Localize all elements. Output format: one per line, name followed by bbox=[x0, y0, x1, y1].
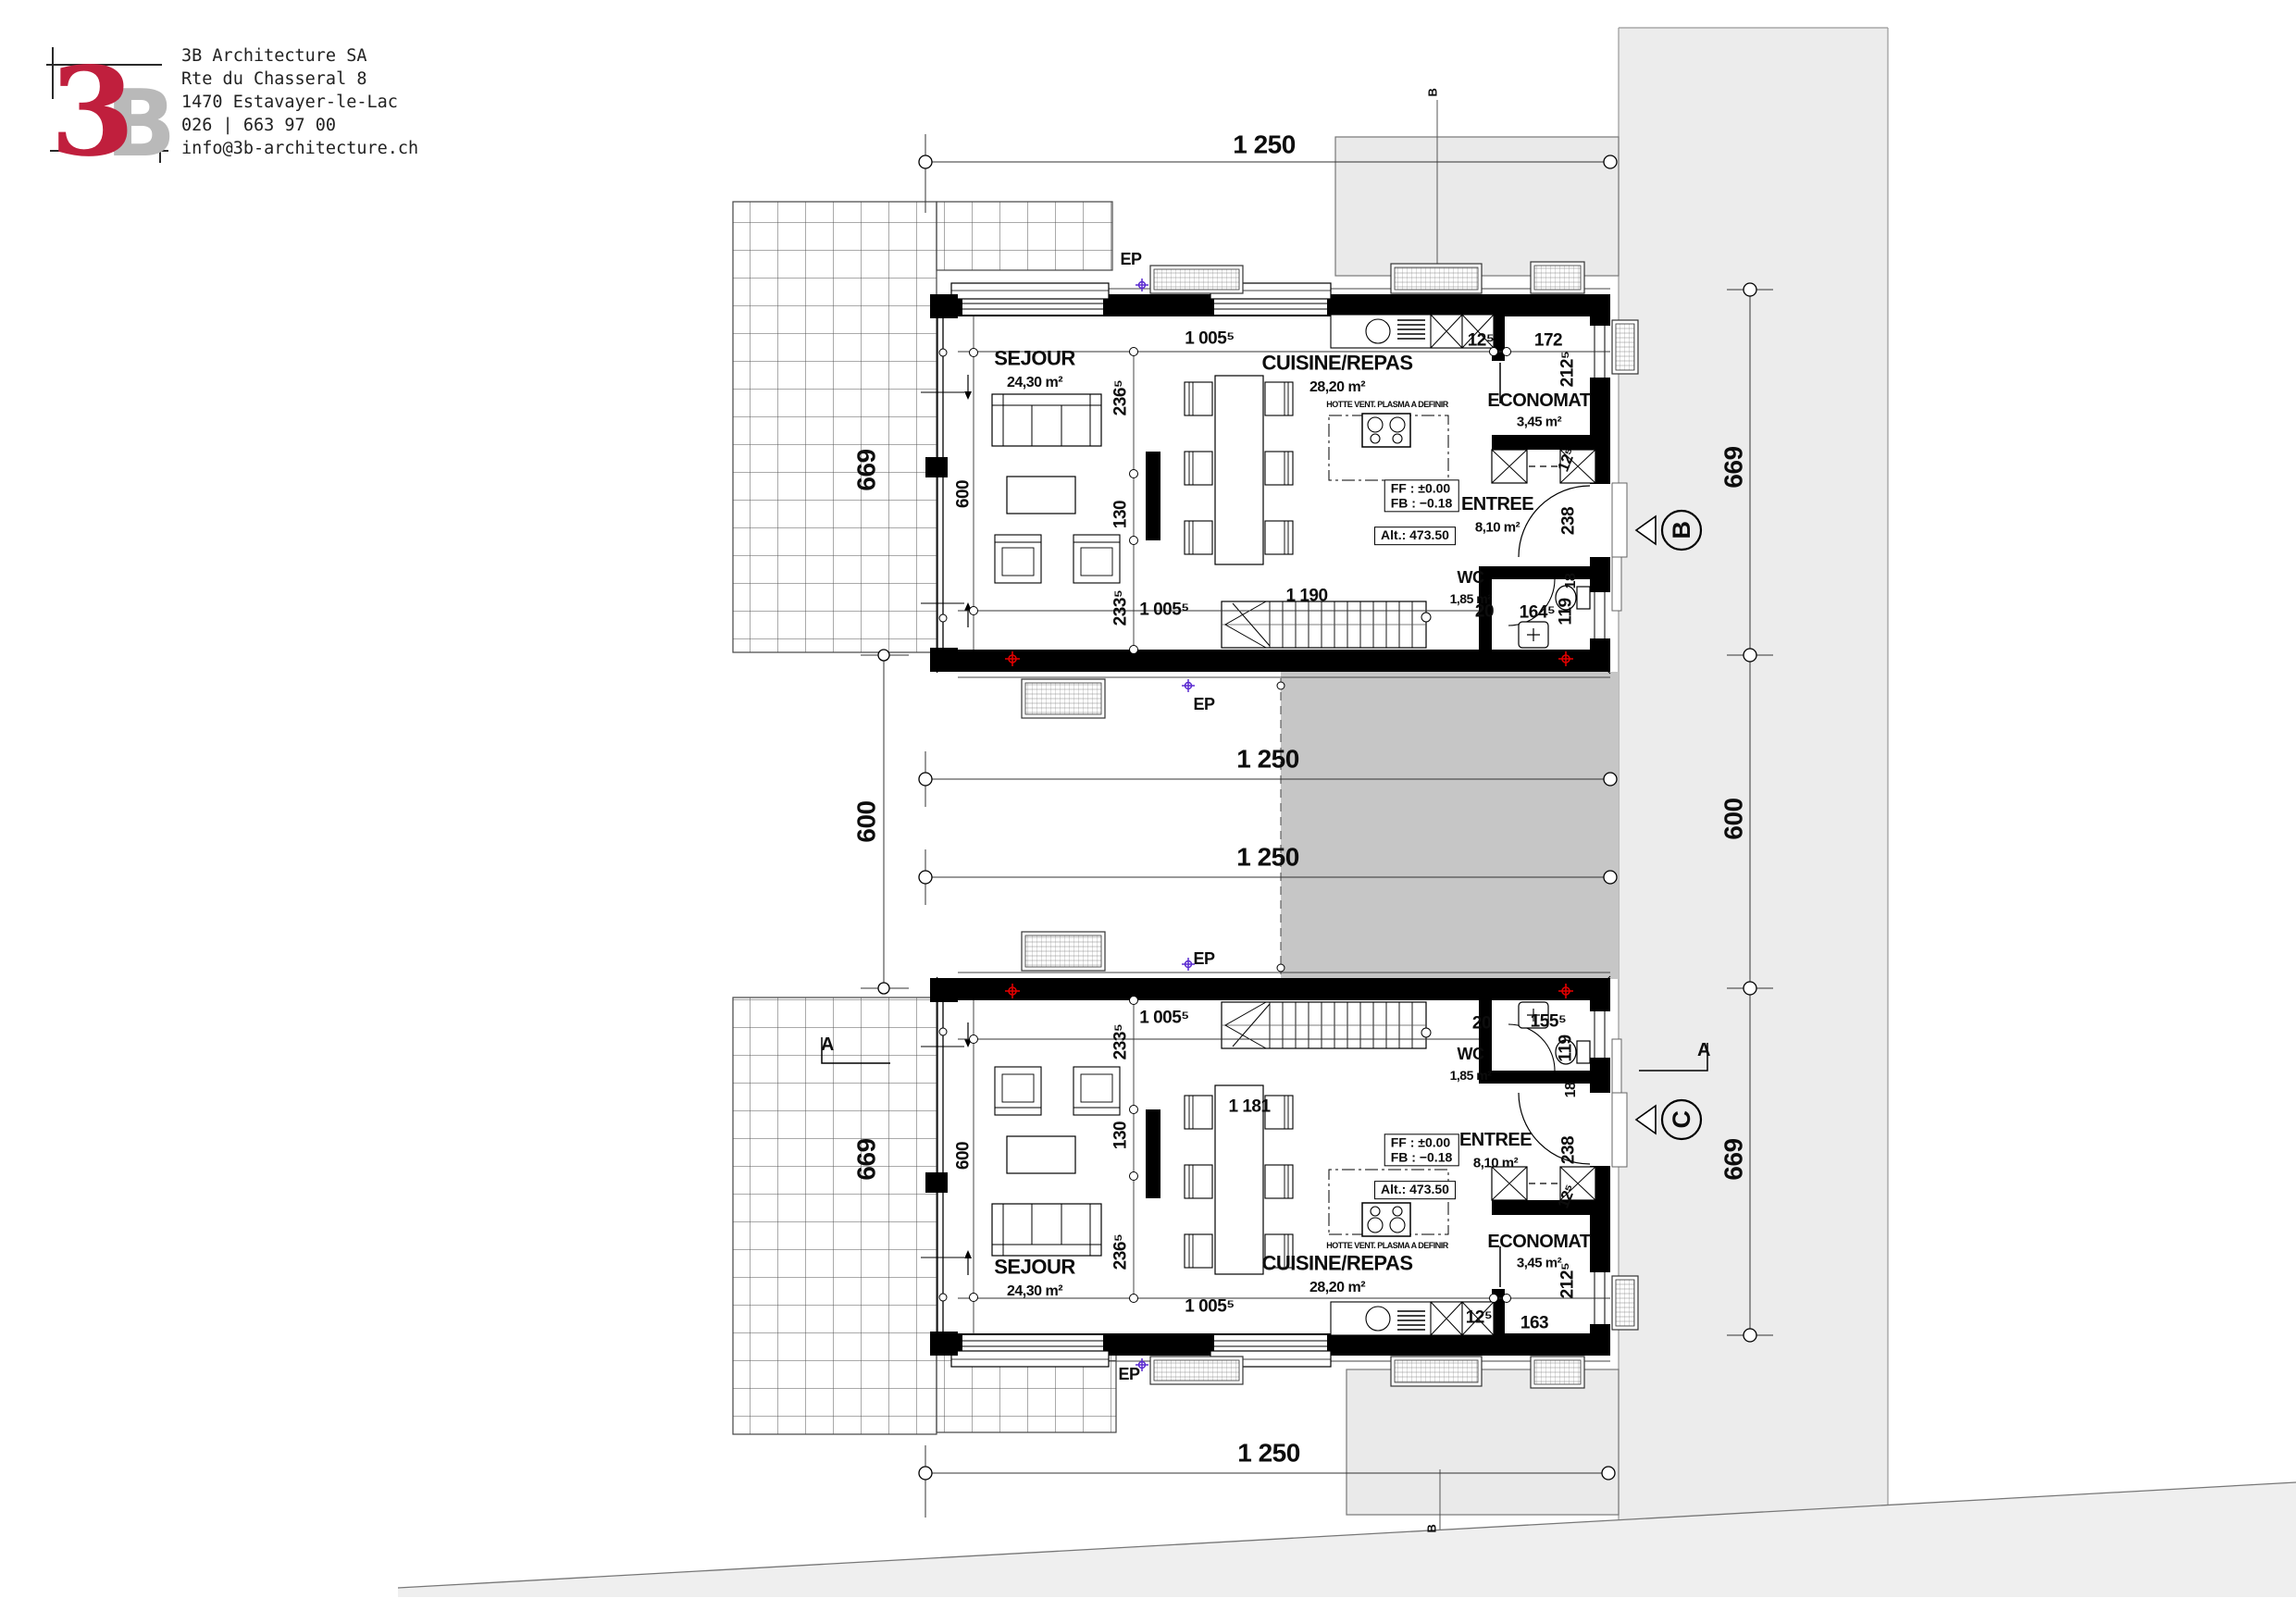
phone-number: 026 | 663 97 00 bbox=[181, 114, 418, 137]
unit-lower bbox=[921, 932, 1638, 1388]
address-city: 1470 Estavayer-le-Lac bbox=[181, 91, 418, 114]
neighbor-building-south bbox=[1347, 1369, 1619, 1534]
architect-address: 3B Architecture SA Rte du Chasseral 8 14… bbox=[181, 44, 418, 160]
unit-upper bbox=[921, 262, 1638, 718]
plan-drawing bbox=[0, 0, 2296, 1623]
email-address: info@3b-architecture.ch bbox=[181, 137, 418, 160]
floor-plan-sheet: B 3 3B Architecture SA Rte du Chasseral … bbox=[0, 0, 2296, 1623]
address-street: Rte du Chasseral 8 bbox=[181, 68, 418, 91]
courtyard bbox=[1277, 672, 1619, 979]
neighbor-building-north bbox=[1335, 100, 1619, 276]
road-strip bbox=[1619, 28, 1888, 1519]
architect-logo: B 3 3B Architecture SA Rte du Chasseral … bbox=[17, 17, 535, 220]
company-name: 3B Architecture SA bbox=[181, 44, 418, 68]
logo-numeral-3: 3 bbox=[50, 52, 135, 174]
